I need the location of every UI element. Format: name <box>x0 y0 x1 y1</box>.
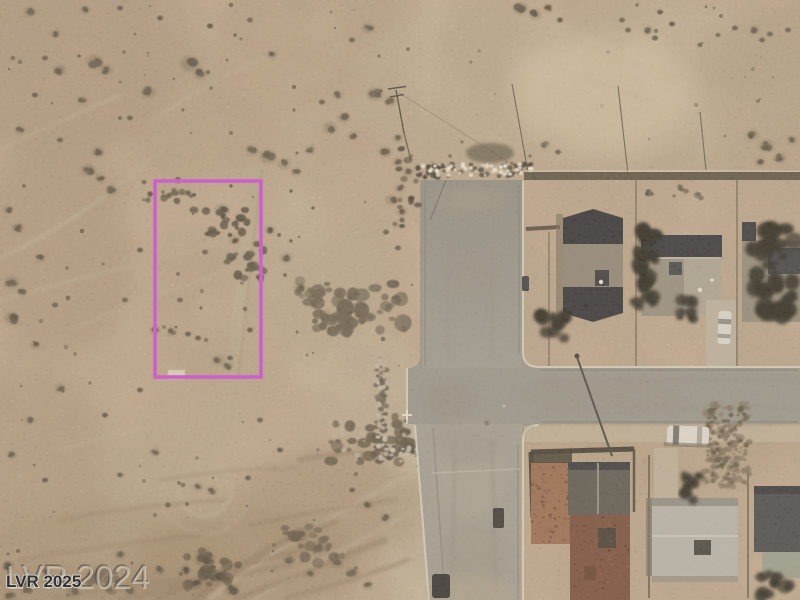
svg-text:LVR 2025: LVR 2025 <box>6 572 81 591</box>
